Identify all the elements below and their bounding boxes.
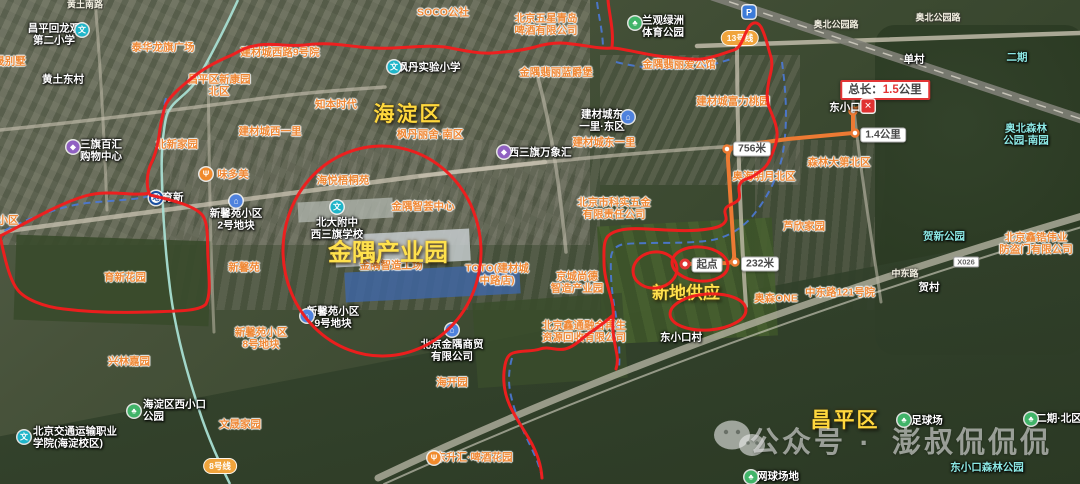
- destination-label: 东小口: [829, 100, 861, 115]
- total-length-prefix: 总长：: [848, 84, 883, 96]
- route-measurement-layer: 总长：1.5公里 东小口 ✕ 232米756米1.4公里起点: [0, 0, 1080, 484]
- total-length-value: 1.5: [883, 84, 899, 96]
- total-length-unit: 公里: [899, 84, 922, 96]
- destination-station-icon[interactable]: ✕: [862, 100, 875, 113]
- route-start-label[interactable]: 起点: [692, 258, 723, 273]
- route-total-length-box: 总长：1.5公里: [840, 80, 930, 100]
- satellite-map-canvas[interactable]: SOCO公社泰华龙旗广场建材城西路9号院昌平区新康园北区知本时代建材城西一里北新…: [0, 0, 1080, 484]
- route-distance-label: 756米: [733, 142, 771, 157]
- route-distance-label: 1.4公里: [860, 128, 906, 143]
- route-distance-label: 232米: [741, 257, 779, 272]
